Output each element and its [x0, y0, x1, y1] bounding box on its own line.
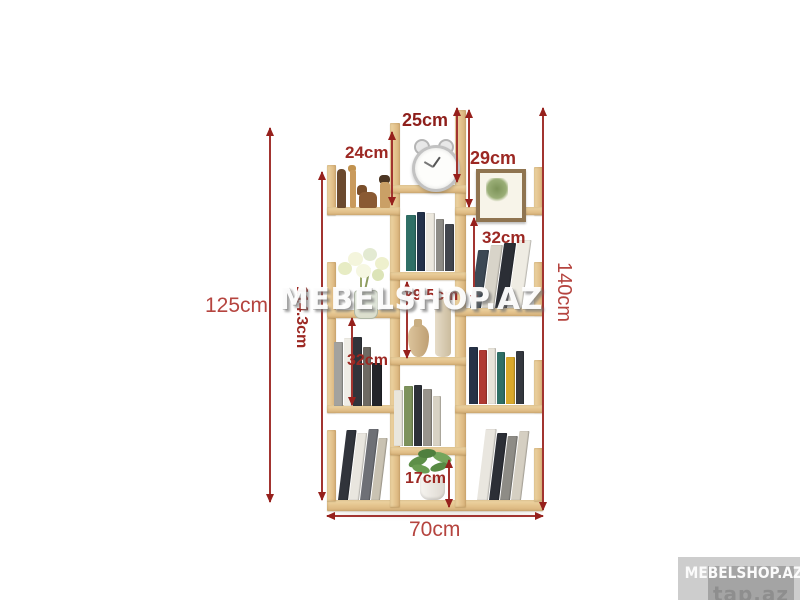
dim-label-32-right: 32cm: [482, 228, 525, 248]
shelf-board: [455, 405, 543, 413]
shelf-board: [327, 207, 400, 215]
dim-label-29: 29cm: [470, 148, 516, 169]
dim-label-width-70: 70cm: [409, 518, 460, 542]
product-image: 125cm 114.3cm 140cm 24cm 25cm 29cm 32cm …: [0, 0, 800, 600]
photo-frame-decor: [476, 169, 526, 222]
dim-arrow-25: [456, 108, 458, 182]
books-decor: [469, 345, 531, 404]
dim-arrow-17: [448, 460, 450, 507]
dim-label-height-125: 125cm: [205, 294, 268, 318]
dim-label-25: 25cm: [402, 110, 448, 131]
dim-arrow-24: [391, 132, 393, 205]
dim-arrow-height-125: [269, 128, 271, 502]
watermark-corner-text: MEBELSHOP.AZ: [685, 563, 792, 582]
books-decor: [338, 427, 402, 500]
dim-arrow-height-114: [321, 172, 323, 500]
books-decor: [477, 427, 544, 500]
watermark-center: MEBELSHOP.AZ: [279, 282, 543, 317]
watermark-tapaz-text: tap.az: [713, 582, 789, 600]
dim-label-24: 24cm: [345, 143, 388, 163]
books-decor: [406, 212, 460, 271]
dim-label-17: 17cm: [405, 470, 446, 488]
dim-arrow-width-70: [327, 515, 543, 517]
books-decor: [394, 384, 456, 446]
dim-label-32-left: 32cm: [347, 352, 388, 370]
dim-label-height-140: 140cm: [552, 262, 575, 322]
shelf-board: [390, 357, 466, 365]
shelf-base: [327, 500, 543, 511]
shelf-board: [327, 405, 400, 413]
books-decor: [334, 336, 392, 406]
shelf-left-lip: [327, 430, 336, 501]
shelf-board: [390, 272, 466, 280]
animal-figurines-decor: [335, 165, 393, 208]
alarm-clock-decor: [411, 139, 455, 186]
